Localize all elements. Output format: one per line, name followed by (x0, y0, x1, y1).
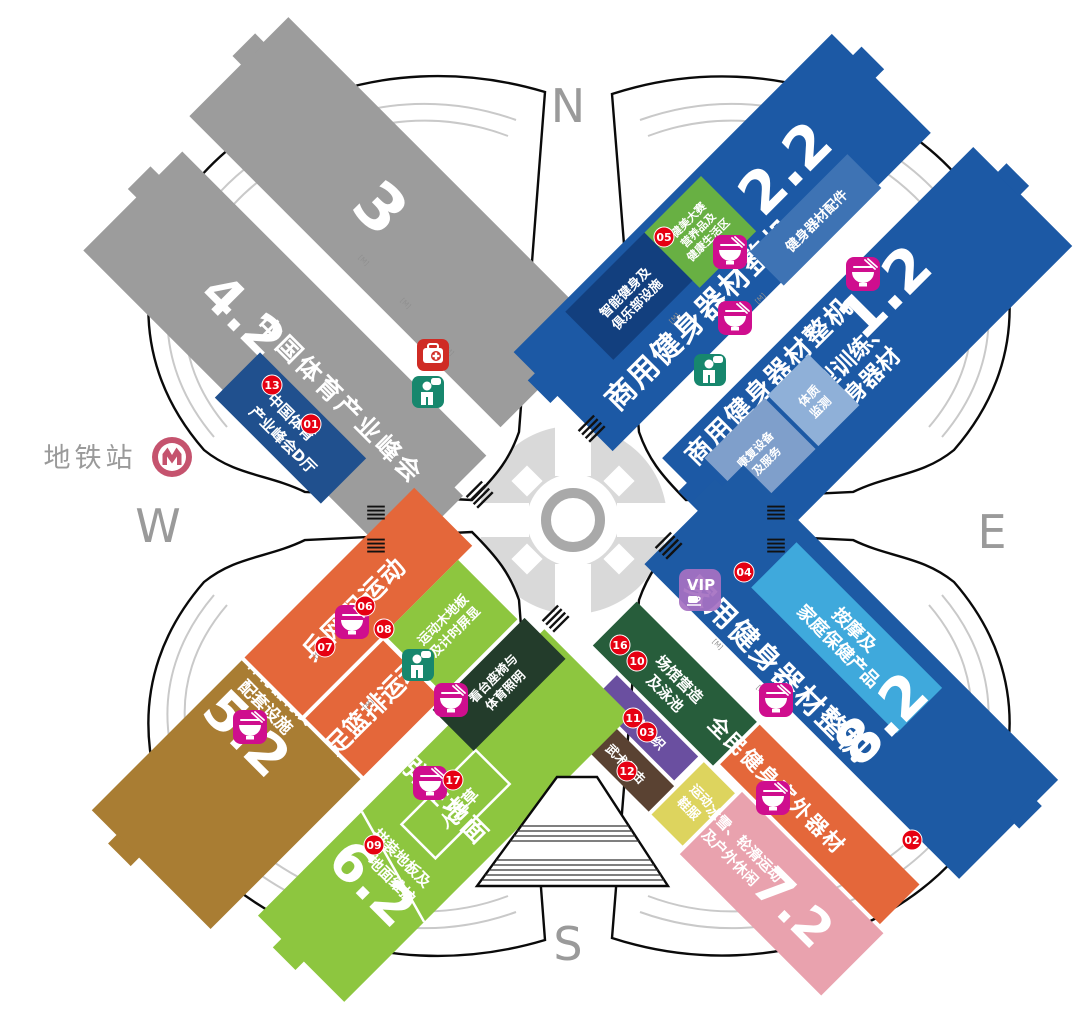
svg-text:04: 04 (736, 566, 752, 579)
marker-08: 08 (374, 619, 394, 639)
marker-01: 01 (301, 414, 321, 434)
svg-text:03: 03 (639, 726, 654, 739)
marker-16: 16 (610, 635, 630, 655)
marker-03: 03 (637, 722, 657, 742)
svg-text:05: 05 (656, 231, 671, 244)
venue-map: 3 4.2 中国体育产业峰会 中国体育 产业峰会D厅 2.2 1.2 商用健身器… (0, 0, 1080, 1032)
svg-text:13: 13 (264, 379, 279, 392)
vip-label: VIP (687, 576, 715, 594)
svg-text:06: 06 (357, 600, 373, 613)
compass-west: W (135, 499, 180, 553)
metro-label: 地铁站 (44, 443, 137, 474)
svg-text:11: 11 (625, 712, 640, 725)
marker-13: 13 (262, 375, 282, 395)
marker-02: 02 (902, 830, 922, 850)
compass-north: N (551, 79, 585, 133)
svg-text:09: 09 (366, 839, 381, 852)
svg-text:12: 12 (619, 765, 634, 778)
plaza-ring (546, 493, 600, 547)
svg-text:08: 08 (376, 623, 391, 636)
metro-logo-icon (152, 437, 192, 477)
marker-10: 10 (627, 651, 647, 671)
venue-map-svg: 3 4.2 中国体育产业峰会 中国体育 产业峰会D厅 2.2 1.2 商用健身器… (0, 0, 1080, 1032)
svg-text:01: 01 (303, 418, 318, 431)
vip-lounge-icon: VIP (679, 569, 721, 611)
marker-12: 12 (617, 761, 637, 781)
marker-09: 09 (364, 835, 384, 855)
svg-text:17: 17 (445, 774, 460, 787)
marker-07: 07 (315, 637, 335, 657)
marker-06: 06 (355, 596, 375, 616)
marker-04: 04 (734, 562, 754, 582)
compass-south: S (553, 917, 582, 971)
svg-text:10: 10 (629, 655, 645, 668)
svg-text:02: 02 (904, 834, 919, 847)
compass-east: E (977, 505, 1006, 559)
marker-17: 17 (443, 770, 463, 790)
marker-05: 05 (654, 227, 674, 247)
svg-text:16: 16 (612, 639, 628, 652)
svg-text:07: 07 (317, 641, 332, 654)
metro-station: 地铁站 (44, 437, 193, 477)
